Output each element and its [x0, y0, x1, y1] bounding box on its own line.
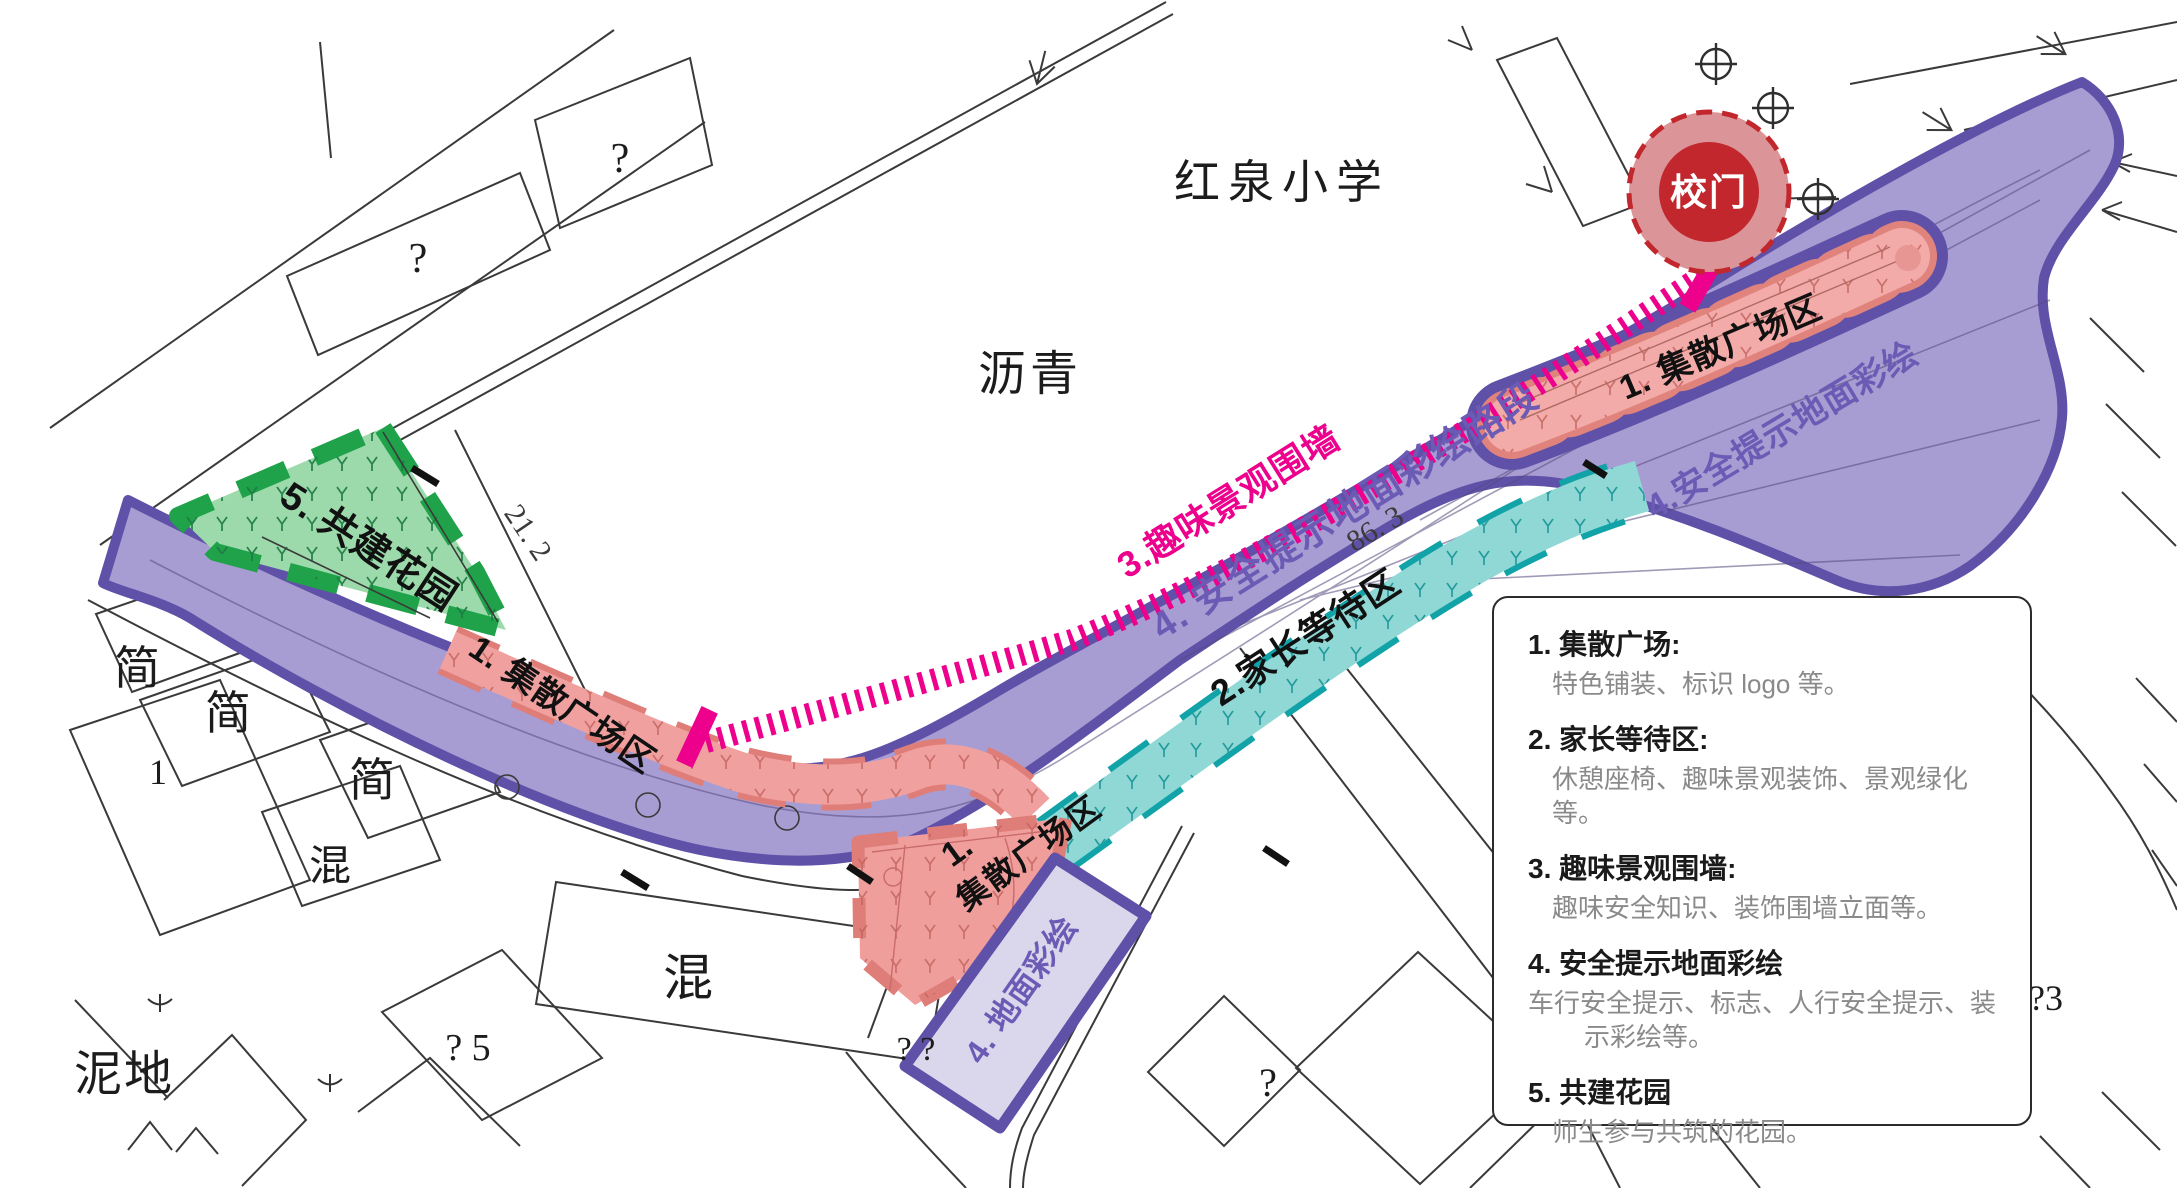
building-line: [128, 1122, 218, 1154]
legend-item-name: 安全提示地面彩绘: [1559, 948, 1783, 979]
building-line: [164, 1035, 306, 1186]
legend-item-name: 集散广场:: [1559, 629, 1680, 660]
legend-item-plaza: 1. 集散广场: 特色铺装、标识 logo 等。: [1528, 628, 1998, 701]
lot-number-label: 1: [149, 752, 167, 792]
legend-item-title: 4. 安全提示地面彩绘: [1528, 947, 1998, 981]
legend-item-waiting: 2. 家长等待区: 休憩座椅、趣味景观装饰、景观绿化等。: [1528, 723, 1998, 830]
building-outline: [1148, 996, 1300, 1146]
simple-label-3: 简: [349, 755, 395, 806]
legend-item-garden: 5. 共建花园 师生参与共筑的花园。: [1528, 1076, 1998, 1150]
survey-mark-icon: [1695, 43, 1737, 85]
legend-item-number: 5.: [1528, 1077, 1551, 1108]
legend-item-title: 2. 家长等待区:: [1528, 723, 1998, 757]
legend-item-desc: 特色铺装、标识 logo 等。: [1528, 667, 1998, 701]
building-question-3: ?: [1259, 1060, 1277, 1105]
tree-icon: [318, 1074, 342, 1092]
building-question-1: ?: [409, 236, 428, 282]
legend-item-number: 4.: [1528, 948, 1551, 979]
site-plan-page: { "map": { "school_name": "红泉小学", "surfa…: [0, 0, 2177, 1188]
legend-item-number: 1.: [1528, 629, 1551, 660]
building-line: [358, 1058, 520, 1146]
legend-item-desc: 师生参与共筑的花园。: [1528, 1116, 1998, 1150]
legend-item-title: 3. 趣味景观围墙:: [1528, 852, 1998, 886]
road-line: [1850, 22, 2177, 84]
road-line: [2102, 202, 2177, 232]
legend-item-paint: 4. 安全提示地面彩绘 车行安全提示、标志、人行安全提示、装示彩绘等。: [1528, 947, 1998, 1054]
building-arrow: [1448, 26, 1472, 50]
simple-label-2: 简: [205, 688, 251, 739]
building-question-4: ? 5: [445, 1027, 490, 1069]
road-arrow-icon: [1916, 101, 1959, 141]
mixed-label-large: 混: [663, 950, 713, 1006]
legend-item-desc: 车行安全提示、标志、人行安全提示、装示彩绘等。: [1528, 986, 1998, 1055]
mud-label: 泥地: [74, 1048, 174, 1101]
legend-item-name: 趣味景观围墙:: [1559, 853, 1736, 884]
building-outline: [1497, 38, 1643, 226]
building-question-5: ? ?: [897, 1031, 936, 1068]
legend-box: 1. 集散广场: 特色铺装、标识 logo 等。 2. 家长等待区: 休憩座椅、…: [1492, 596, 2032, 1126]
school-name-label: 红泉小学: [1174, 157, 1390, 208]
legend-item-title: 5. 共建花园: [1528, 1076, 1998, 1111]
legend-item-number: 3.: [1528, 853, 1551, 884]
legend-item-title: 1. 集散广场:: [1528, 628, 1998, 662]
legend-item-number: 2.: [1528, 724, 1551, 755]
tree-icon: [148, 994, 172, 1012]
asphalt-label: 沥青: [978, 348, 1082, 401]
mixed-label-small: 混: [309, 844, 351, 890]
legend-item-name: 家长等待区:: [1559, 724, 1708, 755]
survey-mark-icon: [1752, 87, 1794, 129]
building-arrow: [1526, 166, 1552, 192]
legend-item-name: 共建花园: [1559, 1078, 1671, 1109]
school-gate-marker: 校门: [1629, 112, 1789, 272]
legend-item-desc: 休憩座椅、趣味景观装饰、景观绿化等。: [1528, 762, 1998, 831]
building-question-6: ?3: [2029, 978, 2063, 1018]
legend-item-desc: 趣味安全知识、装饰围墙立面等。: [1528, 891, 1998, 925]
road-arrow-icon: [2030, 25, 2073, 65]
building-outline: [382, 950, 602, 1120]
road-line: [320, 42, 331, 158]
building-question-2: ?: [611, 136, 630, 182]
legend-item-wall: 3. 趣味景观围墙: 趣味安全知识、装饰围墙立面等。: [1528, 852, 1998, 925]
gate-label: 校门: [1670, 172, 1748, 213]
simple-label-1: 简: [114, 643, 160, 694]
